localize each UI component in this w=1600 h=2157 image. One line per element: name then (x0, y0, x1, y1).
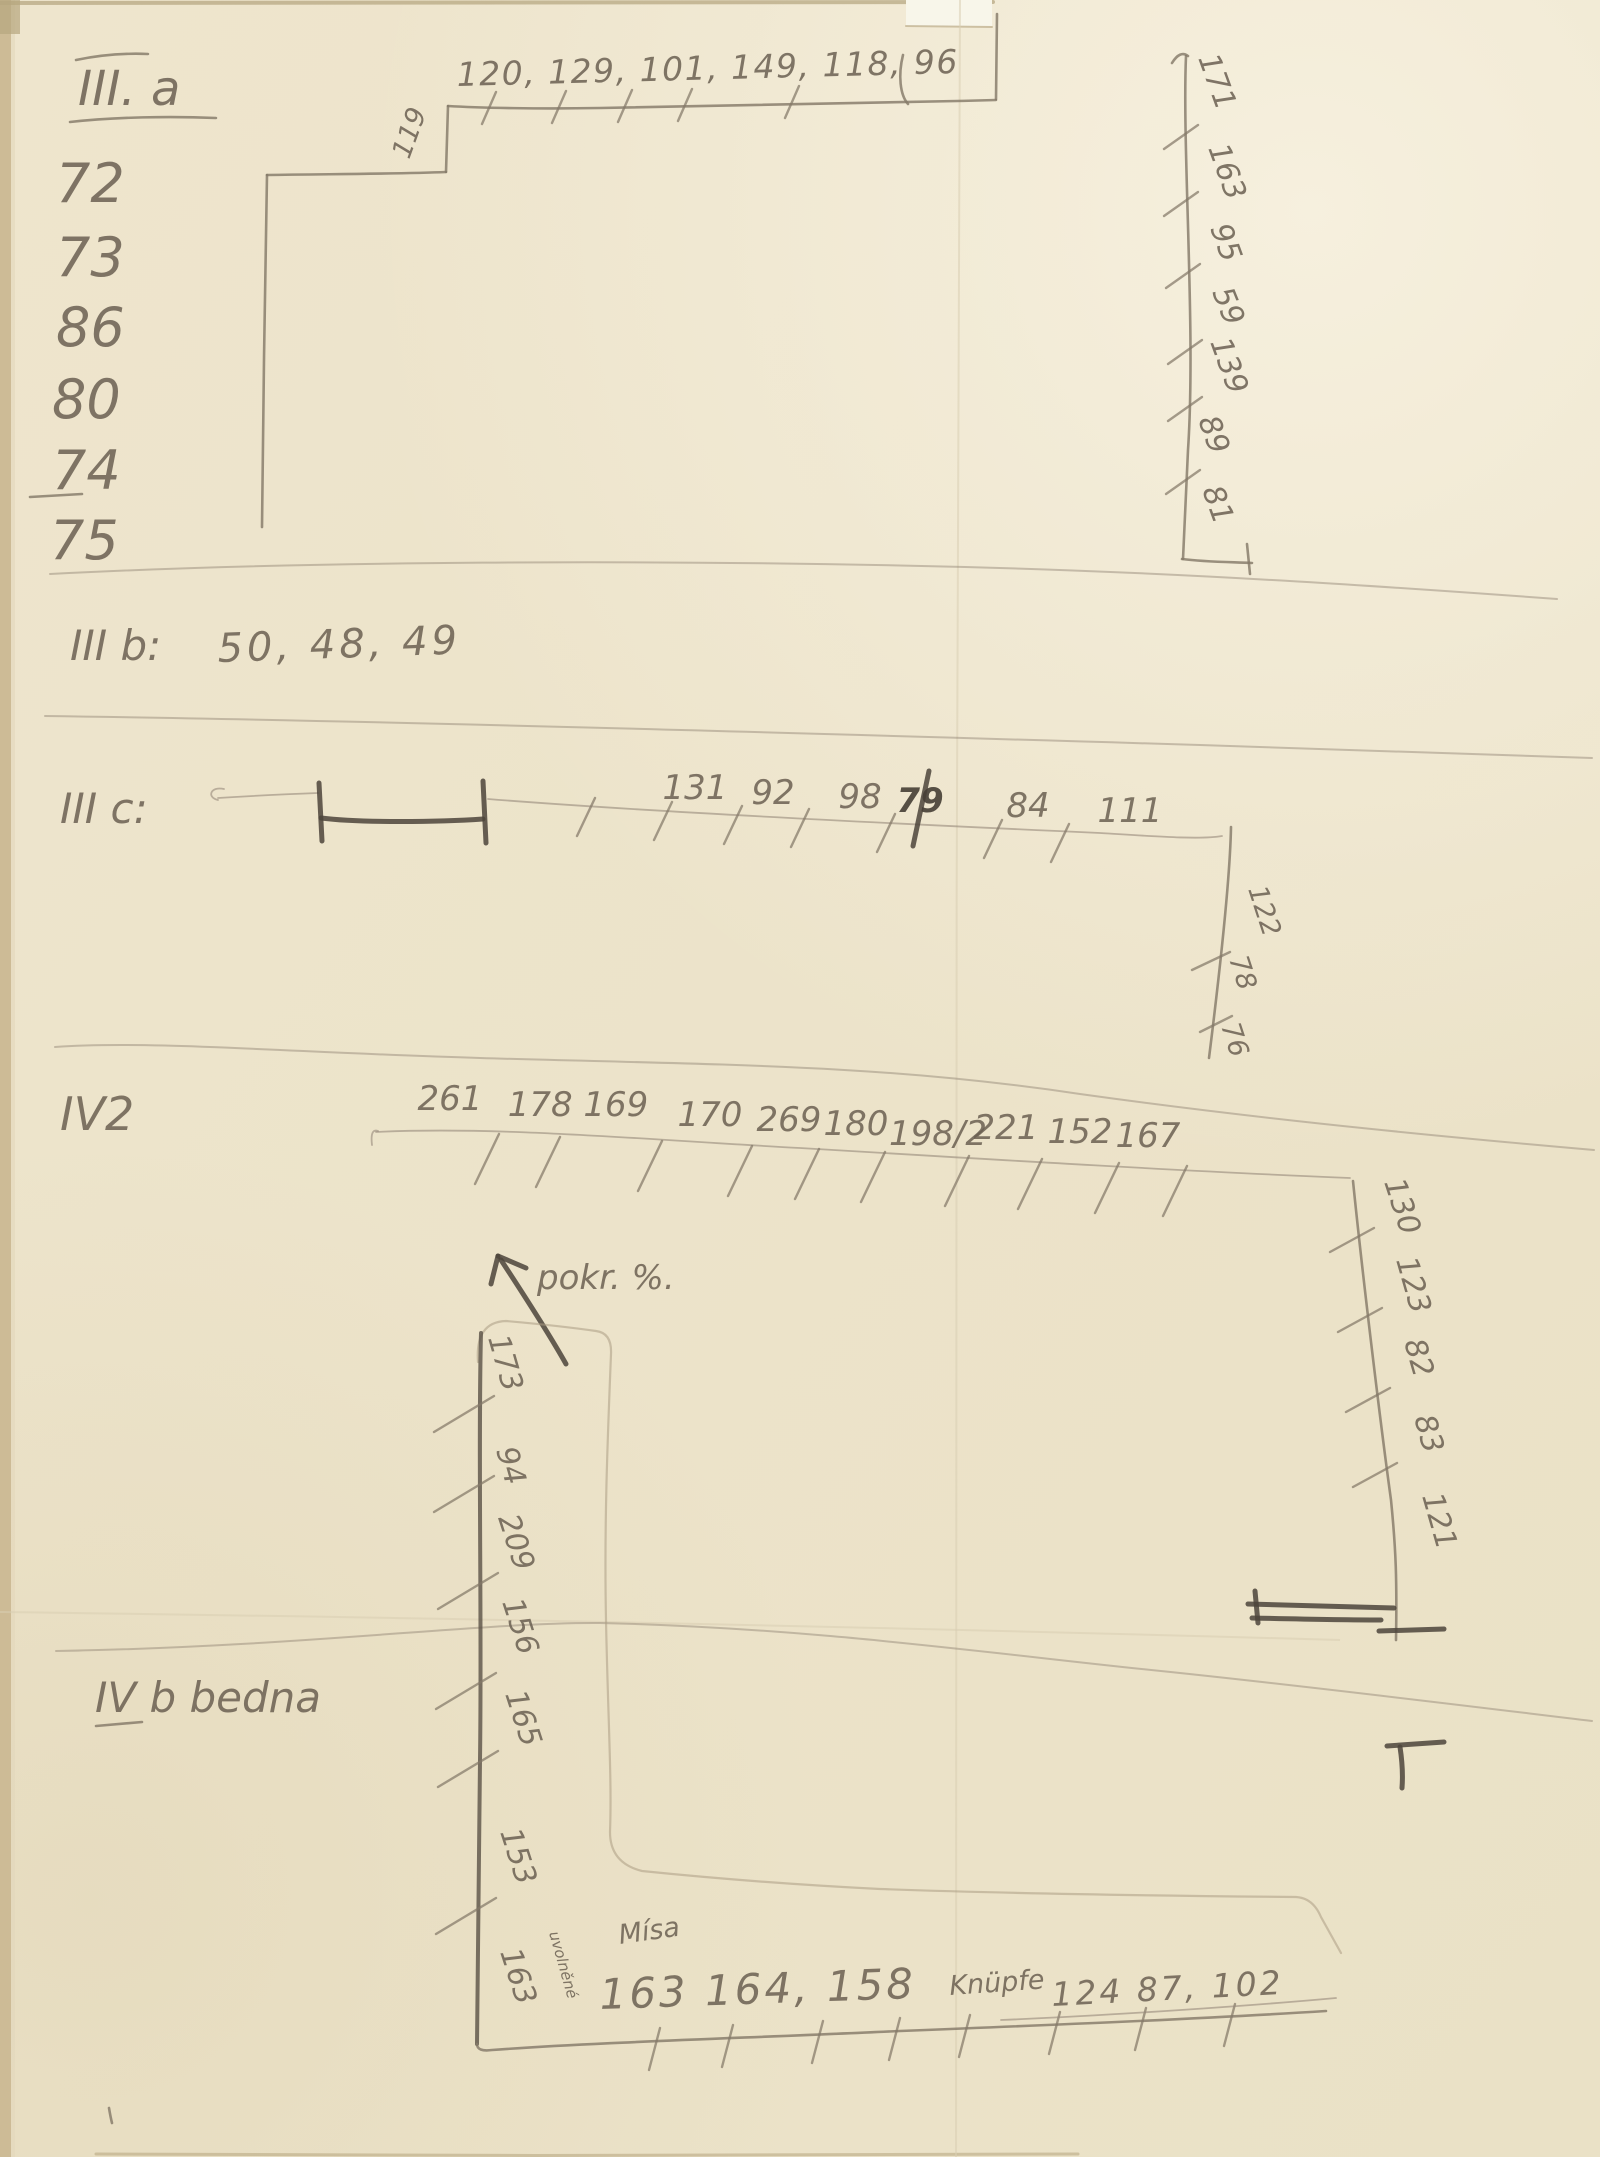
iv2-row-value: 180 (824, 1104, 889, 1144)
iv2-bold-base (1379, 1629, 1444, 1631)
t-mark-stem (1400, 1747, 1402, 1788)
section-ivb-label: IV b bedna (95, 1673, 321, 1722)
field-notes-sketch: III. a 72 73 86 80 74 75 120, 129, 101, … (0, 0, 1600, 2157)
iiic-bold-tick-1 (319, 783, 322, 841)
page-left-edge-inner (11, 0, 15, 2157)
iv2-row-value: 269 (757, 1100, 822, 1140)
iv2-row-value: 152 (1048, 1112, 1113, 1152)
iv2-row-value: 198/2 (889, 1114, 987, 1154)
section-iiia-label: III. a (78, 61, 180, 117)
iiic-row-value-overwritten: 79 (896, 781, 943, 821)
iiic-row-value: 131 (663, 768, 728, 808)
paper-shade-area (0, 0, 1600, 2157)
iiia-left-value: 74 (52, 439, 121, 502)
iv2-row-value: 167 (1116, 1116, 1181, 1156)
iiib-values: 50, 48, 49 (217, 618, 462, 672)
page-left-edge (0, 0, 11, 2157)
section-iv2-label: IV2 (60, 1087, 134, 1141)
iiia-left-value: 86 (56, 296, 125, 359)
section-iiic-label: III c: (60, 784, 148, 833)
iv2-row-value: 178 169 (508, 1085, 649, 1125)
iiia-left-value: 75 (50, 509, 119, 572)
iiia-left-value: 72 (56, 152, 125, 215)
page-corner-mark (0, 0, 20, 34)
iiic-row-value: 92 (751, 773, 794, 813)
paper-strip-top (906, 0, 992, 26)
iv2-bold-bar-2 (1252, 1618, 1381, 1620)
knupfe-label: Knüpfe (948, 1964, 1045, 2002)
page-top-edge (0, 2, 993, 3)
arrow-note: pokr. %. (536, 1258, 675, 1298)
section-iiib-label: III b: (70, 621, 161, 670)
iv2-row-value: 170 (678, 1095, 743, 1135)
iiic-row-value: 98 (838, 777, 881, 817)
iiia-left-value: 80 (52, 368, 121, 431)
iiic-row-value: 84 (1006, 786, 1049, 826)
iiia-left-value: 73 (56, 226, 125, 289)
iiia-outline-end-tick (996, 14, 997, 99)
page-bottom-edge (96, 2154, 1078, 2156)
iiic-bold-tick-2 (483, 781, 486, 843)
paper-strip-edge (906, 26, 992, 27)
section-iiib: III b: 50, 48, 49 (70, 618, 462, 672)
iiic-row-value: 111 (1098, 791, 1163, 831)
scanned-notebook-page: III. a 72 73 86 80 74 75 120, 129, 101, … (0, 0, 1600, 2157)
iv2-row-value: 261 (418, 1079, 483, 1119)
iv2-row-value: 221 (974, 1108, 1039, 1148)
